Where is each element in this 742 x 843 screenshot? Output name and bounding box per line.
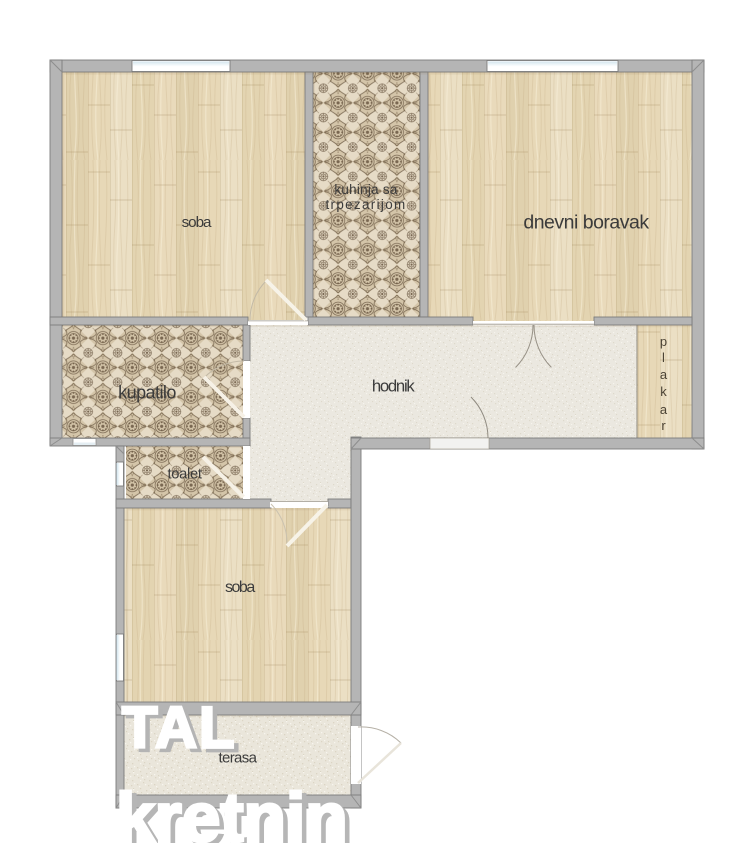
svg-text:kuhinja sa: kuhinja sa <box>334 182 398 197</box>
svg-text:kretnin: kretnin <box>116 778 348 843</box>
svg-text:kupatilo: kupatilo <box>118 383 176 403</box>
svg-text:l: l <box>662 350 665 365</box>
svg-text:p: p <box>660 334 667 349</box>
svg-text:toalet: toalet <box>168 466 202 482</box>
svg-text:dnevni boravak: dnevni boravak <box>523 212 649 234</box>
svg-text:a: a <box>660 367 668 382</box>
svg-text:TAL: TAL <box>122 696 236 761</box>
svg-text:soba: soba <box>225 579 255 596</box>
svg-text:trpezarijom: trpezarijom <box>325 197 406 212</box>
svg-text:r: r <box>661 418 666 433</box>
svg-text:a: a <box>660 402 668 417</box>
svg-text:k: k <box>660 384 667 399</box>
svg-text:soba: soba <box>182 214 212 231</box>
svg-text:hodnik: hodnik <box>372 377 416 396</box>
